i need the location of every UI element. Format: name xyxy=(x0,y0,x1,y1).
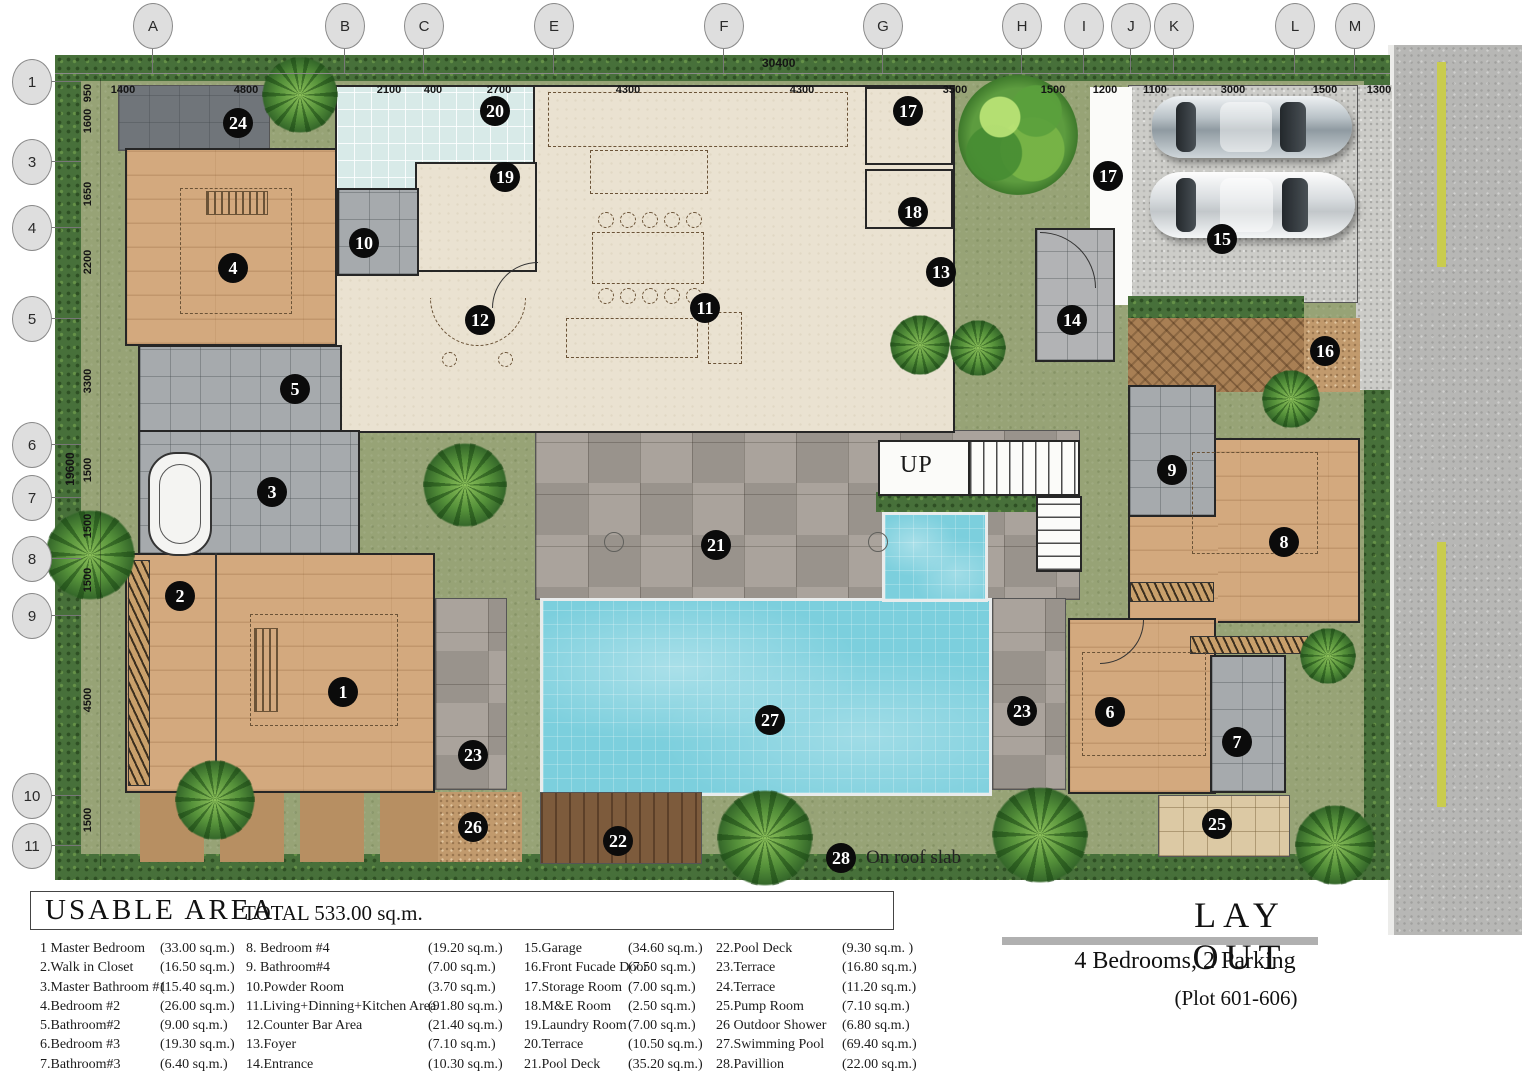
room-marker-17: 17 xyxy=(893,96,923,126)
grid-leader xyxy=(51,845,81,846)
dimension-label: 1200 xyxy=(1093,84,1117,96)
dining-chair xyxy=(620,212,636,228)
grid-leader xyxy=(51,318,81,319)
room-marker-8: 8 xyxy=(1269,527,1299,557)
legend-item-name: 12.Counter Bar Area xyxy=(246,1018,362,1034)
car-rear-window xyxy=(1176,178,1196,232)
grid-bubble-C: C xyxy=(404,3,444,49)
grid-leader xyxy=(51,81,81,82)
road-marking xyxy=(1437,542,1446,807)
dimension-label: 1500 xyxy=(82,496,94,556)
dimension-label: 1100 xyxy=(1143,84,1167,96)
dimension-label: 1650 xyxy=(82,164,94,224)
bar-stool xyxy=(442,352,457,367)
car-windshield xyxy=(1280,102,1306,152)
dimension-label: 3300 xyxy=(82,351,94,411)
dimension-label: 1500 xyxy=(82,550,94,610)
dining-chair xyxy=(686,212,702,228)
grid-bubble-4: 4 xyxy=(12,205,52,251)
sofa xyxy=(566,318,698,358)
legend-item-area: (34.60 sq.m.) xyxy=(628,941,703,957)
room-marker-17: 17 xyxy=(1093,161,1123,191)
room-marker-5: 5 xyxy=(280,374,310,404)
legend-item-area: (9.30 sq.m. ) xyxy=(842,941,913,957)
legend-item-area: (26.00 sq.m.) xyxy=(160,999,235,1015)
legend-item-name: 14.Entrance xyxy=(246,1057,313,1073)
room-marker-24: 24 xyxy=(223,108,253,138)
grid-leader xyxy=(1083,47,1084,73)
legend-item-area: (10.50 sq.m.) xyxy=(628,1037,703,1053)
legend-item-name: 5.Bathroom#2 xyxy=(40,1018,121,1034)
legend-item-area: (15.40 sq.m.) xyxy=(160,980,235,996)
palm-tree xyxy=(175,760,255,840)
grid-bubble-10: 10 xyxy=(12,773,52,819)
room-marker-14: 14 xyxy=(1057,305,1087,335)
dimension-label: 4500 xyxy=(82,670,94,730)
car-roof xyxy=(1220,178,1273,232)
room-marker-13: 13 xyxy=(926,257,956,287)
dimension-label: 1500 xyxy=(1041,84,1065,96)
legend-item-name: 9. Bathroom#4 xyxy=(246,960,330,976)
legend-item-area: (3.70 sq.m.) xyxy=(428,980,496,996)
grid-bubble-7: 7 xyxy=(12,475,52,521)
palm-tree xyxy=(992,787,1088,883)
deck-drain xyxy=(604,532,624,552)
legend-item-area: (9.00 sq.m.) xyxy=(160,1018,228,1034)
legend-item-area: (33.00 sq.m.) xyxy=(160,941,235,957)
dimension-label: 2200 xyxy=(82,232,94,292)
dimension-label: 1400 xyxy=(111,84,135,96)
legend-item-area: (6.40 sq.m.) xyxy=(160,1057,228,1073)
legend-item-name: 25.Pump Room xyxy=(716,999,804,1015)
room-marker-21: 21 xyxy=(701,530,731,560)
grid-bubble-J: J xyxy=(1111,3,1151,49)
room-marker-6: 6 xyxy=(1095,697,1125,727)
legend-item-name: 22.Pool Deck xyxy=(716,941,792,957)
grid-bubble-9: 9 xyxy=(12,593,52,639)
legend-item-name: 11.Living+Dinning+Kitchen Area xyxy=(246,999,436,1015)
legend-item-name: 19.Laundry Room xyxy=(524,1018,627,1034)
legend-item-area: (2.50 sq.m.) xyxy=(628,999,696,1015)
grid-bubble-M: M xyxy=(1335,3,1375,49)
bar-stool xyxy=(498,352,513,367)
legend-total: TOTAL 533.00 sq.m. xyxy=(243,901,423,926)
room-marker-28: 28 xyxy=(826,843,856,873)
dimension-label: 1500 xyxy=(1313,84,1337,96)
legend-item-area: (69.40 sq.m.) xyxy=(842,1037,917,1053)
legend-item-area: (22.00 sq.m.) xyxy=(842,1057,917,1073)
room-marker-18: 18 xyxy=(898,197,928,227)
overall-height-dim: 19600 xyxy=(63,439,77,499)
dimension-label: 1300 xyxy=(1367,84,1391,96)
grid-bubble-A: A xyxy=(133,3,173,49)
roof-slab-note: On roof slab xyxy=(866,847,961,869)
grid-bubble-G: G xyxy=(863,3,903,49)
wardrobe-bed4 xyxy=(1130,582,1214,602)
legend-item-area: (7.10 sq.m.) xyxy=(428,1037,496,1053)
grid-leader xyxy=(882,47,883,73)
hedge-strip-facade xyxy=(1128,296,1304,318)
car-white xyxy=(1150,172,1355,238)
room-marker-27: 27 xyxy=(755,705,785,735)
room-marker-2: 2 xyxy=(165,581,195,611)
room-marker-26: 26 xyxy=(458,812,488,842)
terrace-23-right xyxy=(992,598,1066,790)
kitchen-island xyxy=(590,150,708,194)
legend-item-area: (16.80 sq.m.) xyxy=(842,960,917,976)
room-marker-3: 3 xyxy=(257,477,287,507)
palm-tree xyxy=(1295,805,1375,885)
bed-bedroom4 xyxy=(1192,452,1318,554)
grid-leader xyxy=(51,497,81,498)
road xyxy=(1394,45,1522,935)
legend-item-name: 23.Terrace xyxy=(716,960,775,976)
room-marker-22: 22 xyxy=(603,826,633,856)
dimension-line-left xyxy=(100,78,101,866)
grid-bubble-5: 5 xyxy=(12,296,52,342)
legend-item-name: 27.Swimming Pool xyxy=(716,1037,824,1053)
car-windshield xyxy=(1282,178,1308,232)
legend-item-area: (35.20 sq.m.) xyxy=(628,1057,703,1073)
dimension-label: 4800 xyxy=(234,84,258,96)
legend-item-name: 26 Outdoor Shower xyxy=(716,1018,826,1034)
car-silver xyxy=(1152,96,1352,158)
room-marker-23: 23 xyxy=(458,740,488,770)
grid-leader xyxy=(51,558,81,559)
palm-tree xyxy=(1300,628,1356,684)
grid-bubble-1: 1 xyxy=(12,59,52,105)
room-marker-10: 10 xyxy=(349,228,379,258)
dimension-line-top xyxy=(55,73,1390,74)
headboard-bedroom2 xyxy=(206,191,268,215)
room-marker-12: 12 xyxy=(465,305,495,335)
legend-item-name: 6.Bedroom #3 xyxy=(40,1037,120,1053)
room-marker-25: 25 xyxy=(1202,809,1232,839)
palm-tree xyxy=(1262,370,1320,428)
legend-item-name: 17.Storage Room xyxy=(524,980,622,996)
legend-item-name: 10.Powder Room xyxy=(246,980,344,996)
grid-leader xyxy=(1173,47,1174,73)
dimension-label: 400 xyxy=(424,84,442,96)
dimension-label: 4300 xyxy=(790,84,814,96)
legend-item-area: (19.30 sq.m.) xyxy=(160,1037,235,1053)
kitchen-counter xyxy=(548,92,848,147)
dining-chair xyxy=(598,212,614,228)
overall-width-dim: 30400 xyxy=(762,56,795,70)
legend-item-name: 28.Pavillion xyxy=(716,1057,784,1073)
legend-item-area: (19.20 sq.m.) xyxy=(428,941,503,957)
palm-tree xyxy=(950,320,1006,376)
legend-item-name: 8. Bedroom #4 xyxy=(246,941,330,957)
bathroom-2-room5 xyxy=(138,345,342,433)
grid-bubble-3: 3 xyxy=(12,139,52,185)
grid-leader xyxy=(51,227,81,228)
dimension-label: 1500 xyxy=(82,440,94,500)
road-marking xyxy=(1437,62,1446,267)
room-marker-19: 19 xyxy=(490,162,520,192)
legend-item-name: 21.Pool Deck xyxy=(524,1057,600,1073)
room-marker-11: 11 xyxy=(690,293,720,323)
grid-bubble-E: E xyxy=(534,3,574,49)
grid-leader xyxy=(423,47,424,73)
grid-leader xyxy=(152,47,153,73)
legend-item-area: (16.50 sq.m.) xyxy=(160,960,235,976)
legend-item-area: (91.80 sq.m.) xyxy=(428,999,503,1015)
grid-leader xyxy=(51,615,81,616)
swimming-pool-27 xyxy=(540,598,992,796)
staircase-lower-run xyxy=(1036,496,1082,572)
floor-plan-canvas: UP On roof xyxy=(0,0,1522,1076)
dining-chair xyxy=(642,288,658,304)
room-marker-1: 1 xyxy=(328,677,358,707)
dimension-label: 2700 xyxy=(487,84,511,96)
bathroom-3-room7 xyxy=(1210,655,1286,793)
grid-leader xyxy=(51,161,81,162)
swimming-pool-arm xyxy=(882,512,988,602)
headboard-master xyxy=(254,628,278,712)
car-rear-window xyxy=(1176,102,1196,152)
grid-bubble-8: 8 xyxy=(12,536,52,582)
legend-item-name: 7.Bathroom#3 xyxy=(40,1057,121,1073)
legend-item-area: (21.40 sq.m.) xyxy=(428,1018,503,1034)
grid-bubble-6: 6 xyxy=(12,422,52,468)
car-roof xyxy=(1220,102,1272,153)
closet-wall xyxy=(215,553,217,793)
legend-item-area: (7.00 sq.m.) xyxy=(628,980,696,996)
legend-item-area: (7.00 sq.m.) xyxy=(428,960,496,976)
legend-item-name: 18.M&E Room xyxy=(524,999,611,1015)
palm-tree xyxy=(890,315,950,375)
room-marker-7: 7 xyxy=(1222,727,1252,757)
dimension-label: 2100 xyxy=(377,84,401,96)
grid-leader xyxy=(344,47,345,73)
grid-leader xyxy=(1354,47,1355,73)
dining-chair xyxy=(664,212,680,228)
layout-title-underline xyxy=(1002,937,1318,945)
grid-leader xyxy=(1021,47,1022,73)
dining-chair xyxy=(642,212,658,228)
legend-item-name: 24.Terrace xyxy=(716,980,775,996)
grid-bubble-K: K xyxy=(1154,3,1194,49)
palm-tree xyxy=(262,57,338,133)
staircase xyxy=(968,440,1080,496)
legend-item-area: (11.20 sq.m.) xyxy=(842,980,916,996)
layout-subtitle: 4 Bedrooms, 2 Parking xyxy=(1058,948,1312,975)
legend-item-name: 4.Bedroom #2 xyxy=(40,999,120,1015)
grid-leader xyxy=(1130,47,1131,73)
grid-bubble-B: B xyxy=(325,3,365,49)
dining-chair xyxy=(620,288,636,304)
grid-bubble-11: 11 xyxy=(12,823,52,869)
grid-bubble-H: H xyxy=(1002,3,1042,49)
grid-leader xyxy=(1294,47,1295,73)
dimension-label: 3000 xyxy=(1221,84,1245,96)
walkin-closet-wardrobe xyxy=(128,560,150,786)
legend-item-name: 13.Foyer xyxy=(246,1037,296,1053)
legend-item-area: (7.10 sq.m.) xyxy=(842,999,910,1015)
legend-item-name: 2.Walk in Closet xyxy=(40,960,133,976)
legend-item-area: (6.80 sq.m.) xyxy=(842,1018,910,1034)
grid-leader xyxy=(51,795,81,796)
room-marker-16: 16 xyxy=(1310,336,1340,366)
room-marker-4: 4 xyxy=(218,253,248,283)
bathtub xyxy=(148,452,212,556)
garage-bridge xyxy=(1356,85,1392,390)
dimension-label: 4300 xyxy=(616,84,640,96)
legend-item-area: (10.30 sq.m.) xyxy=(428,1057,503,1073)
grid-bubble-F: F xyxy=(704,3,744,49)
legend-item-name: 1 Master Bedroom xyxy=(40,941,145,957)
room-marker-20: 20 xyxy=(480,96,510,126)
dimension-label: 1500 xyxy=(82,790,94,850)
up-label: UP xyxy=(900,452,933,479)
legend-item-area: (7.50 sq.m.) xyxy=(628,960,696,976)
dimension-label: 1600 xyxy=(82,91,94,151)
grid-leader xyxy=(51,444,81,445)
wardrobe-bed3 xyxy=(1190,636,1308,654)
legend-item-name: 20.Terrace xyxy=(524,1037,583,1053)
legend-item-name: 3.Master Bathroom #1 xyxy=(40,980,166,996)
grid-bubble-L: L xyxy=(1275,3,1315,49)
palm-tree xyxy=(717,790,813,886)
room-marker-23: 23 xyxy=(1007,696,1037,726)
palm-tree xyxy=(423,443,507,527)
legend-item-name: 15.Garage xyxy=(524,941,582,957)
dining-chair xyxy=(664,288,680,304)
dimension-label: 3500 xyxy=(943,84,967,96)
room-marker-9: 9 xyxy=(1157,455,1187,485)
room-marker-15: 15 xyxy=(1207,224,1237,254)
powder-room-10 xyxy=(337,188,419,276)
layout-plot: (Plot 601-606) xyxy=(1136,986,1336,1011)
grid-leader xyxy=(723,47,724,73)
legend-title: USABLE AREA xyxy=(45,894,275,927)
legend-item-area: (7.00 sq.m.) xyxy=(628,1018,696,1034)
deck-drain xyxy=(868,532,888,552)
dining-chair xyxy=(598,288,614,304)
grid-bubble-I: I xyxy=(1064,3,1104,49)
grid-leader xyxy=(553,47,554,73)
dining-table xyxy=(592,232,704,284)
